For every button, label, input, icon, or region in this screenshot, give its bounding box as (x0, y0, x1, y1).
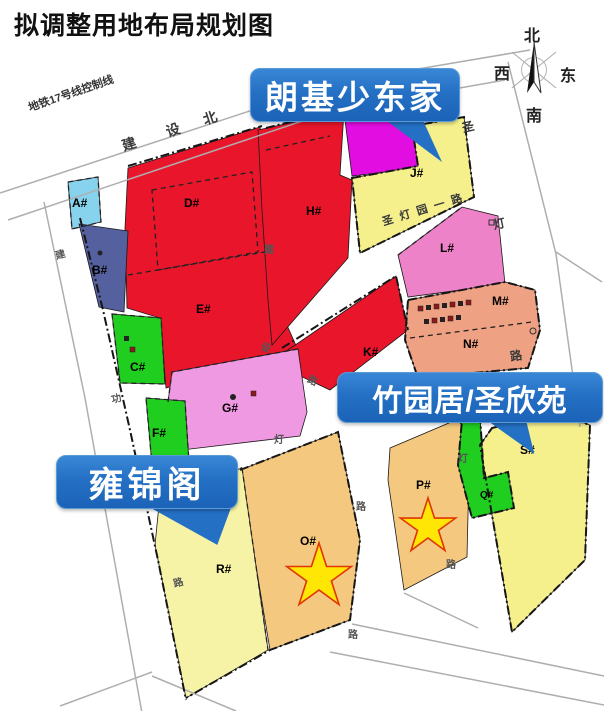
parcel-label-c: C# (130, 360, 145, 374)
parcel-label-k: K# (363, 345, 378, 359)
road-label-op-1: 灯 (274, 431, 284, 446)
parcel-label-h: H# (306, 204, 321, 218)
parcel-label-d: D# (184, 196, 199, 210)
parcel-label-a: A# (72, 196, 87, 210)
parcel-label-g: G# (222, 401, 238, 415)
road-label-op-2: 路 (356, 498, 366, 513)
parcel-label-o: O# (300, 534, 316, 548)
parcel-label-q: Q# (480, 490, 493, 501)
parcel-label-l: L# (440, 241, 454, 255)
road-label-pq-1: 灯 (458, 450, 468, 465)
right-side-road (556, 252, 602, 282)
bottom-road-edge-1 (330, 652, 604, 705)
parcel-label-p: P# (416, 478, 431, 492)
planning-map-page: 拟调整用地布局规划图 (0, 0, 604, 711)
compass-north: 北 (524, 22, 540, 46)
road-label-pq-2: 路 (446, 556, 456, 571)
compass-east: 东 (560, 62, 576, 86)
compass-south: 南 (526, 102, 542, 126)
parcel-h-shape (258, 111, 352, 345)
parcel-label-m: M# (492, 294, 509, 308)
parcel-label-b: B# (92, 263, 107, 277)
parcel-label-e: E# (196, 302, 211, 316)
p-south-road-edge (404, 593, 478, 628)
parcel-label-n: N# (463, 337, 478, 351)
compass: 北 南 西 东 (488, 22, 588, 122)
marker-dot-b (98, 251, 103, 256)
parcel-s-shape (480, 413, 590, 632)
bottom-road-edge-2 (352, 624, 604, 676)
parcel-label-j: J# (410, 166, 423, 180)
road-label-center-1: 建 (264, 241, 274, 256)
callout-langji: 朗基少东家 (250, 68, 460, 122)
compass-west: 西 (494, 60, 510, 84)
parcel-label-r: R# (216, 562, 231, 576)
parcel-label-f: F# (152, 426, 166, 440)
road-label-o-south: 路 (348, 626, 358, 641)
callout-yongjinge: 雍锦阁 (56, 455, 238, 509)
callout-zhuyuanju-shengxinyuan: 竹园居/圣欣苑 (337, 372, 603, 423)
